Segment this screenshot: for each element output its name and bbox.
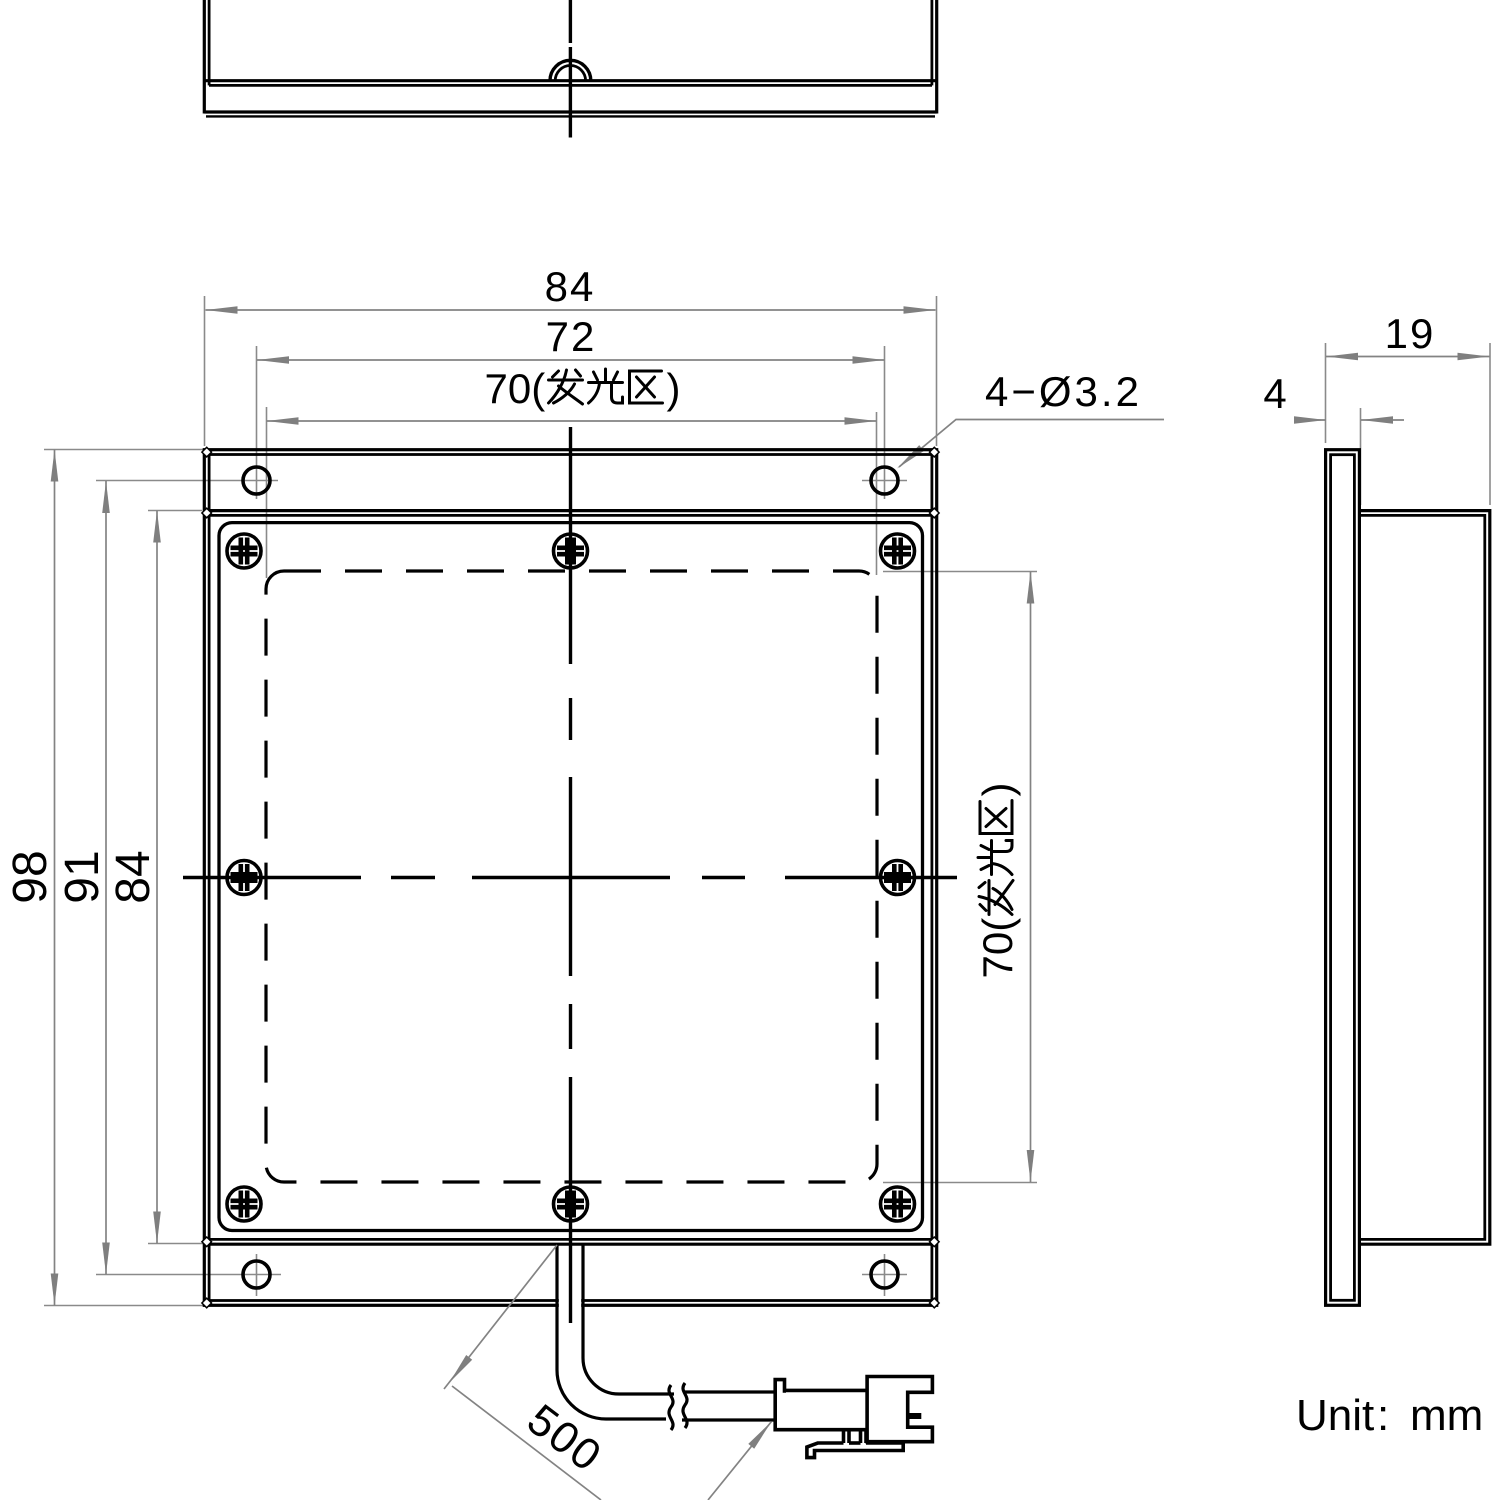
svg-text:91: 91 <box>56 850 109 903</box>
svg-text:84: 84 <box>545 263 596 310</box>
svg-text::: : <box>1377 1391 1389 1440</box>
svg-text:72: 72 <box>546 313 597 360</box>
svg-text:): ) <box>667 365 681 412</box>
svg-text:Unit: Unit <box>1296 1391 1374 1440</box>
svg-text:98: 98 <box>4 850 57 903</box>
svg-text:4: 4 <box>1263 370 1286 417</box>
svg-text:70(: 70( <box>974 918 1021 979</box>
svg-text:): ) <box>974 783 1021 797</box>
svg-text:84: 84 <box>107 850 160 903</box>
svg-text:4−Ø3.2: 4−Ø3.2 <box>985 368 1142 415</box>
svg-text:mm: mm <box>1410 1391 1483 1440</box>
svg-text:70(: 70( <box>485 365 546 412</box>
svg-text:19: 19 <box>1385 310 1436 357</box>
